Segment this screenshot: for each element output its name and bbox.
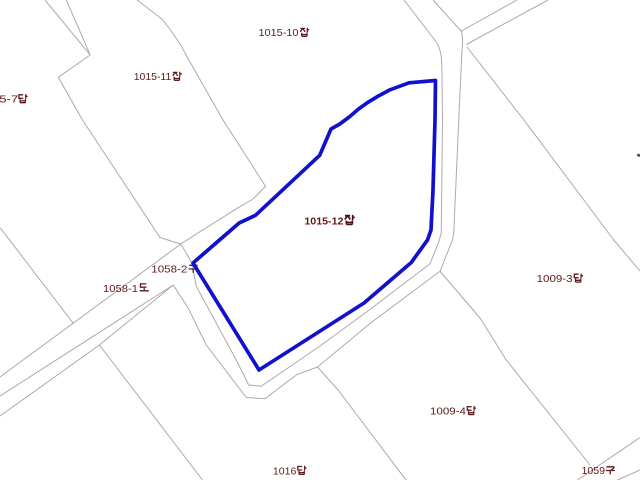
svg-text:1058-2: 1058-2	[151, 264, 187, 275]
svg-text:1015-12: 1015-12	[304, 217, 343, 228]
svg-text:1009-3: 1009-3	[537, 274, 573, 285]
svg-text:5-7: 5-7	[0, 95, 19, 106]
svg-text:1059: 1059	[582, 466, 606, 477]
svg-text:1015-11: 1015-11	[134, 72, 172, 83]
svg-text:1009-4: 1009-4	[430, 407, 466, 418]
svg-text:1015-10: 1015-10	[259, 28, 299, 39]
svg-text:1016: 1016	[273, 466, 297, 477]
svg-text:1058-1: 1058-1	[103, 284, 138, 295]
